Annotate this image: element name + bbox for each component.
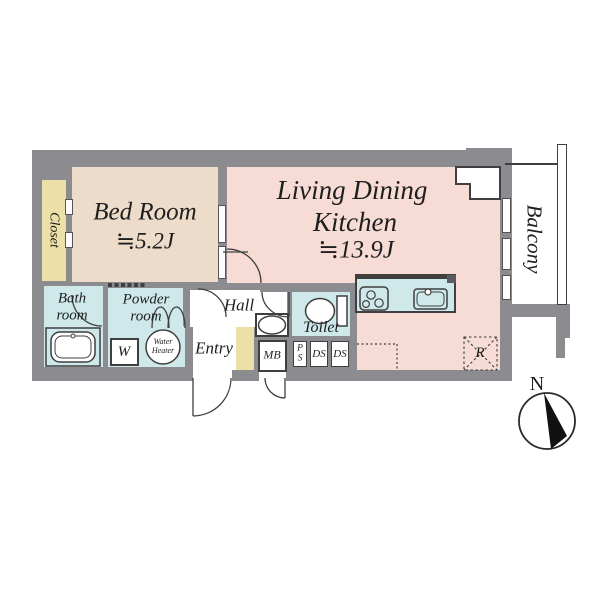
ldk-corner-notch: [456, 167, 500, 199]
pipe-space-label-line1: P: [297, 344, 303, 354]
toilet-label: Toilet: [303, 319, 339, 337]
powder-room-label-line1: Powder: [123, 292, 170, 309]
stove-burner-2: [363, 301, 370, 308]
meter-box-door-arc: [265, 378, 285, 398]
ldk-door-arc: [227, 249, 261, 283]
pipe-space-label: P S: [297, 344, 303, 365]
ldk-label-line2: Kitchen: [313, 208, 397, 238]
duct-space-label-1: DS: [312, 348, 325, 360]
bedroom-label: Bed Room: [93, 198, 196, 226]
pipe-space-label-line2: S: [297, 354, 303, 364]
entry-label: Entry: [195, 340, 233, 359]
hall-door-arc: [198, 289, 226, 317]
sink-faucet: [425, 289, 431, 295]
water-heater-label: Water Heater: [152, 338, 174, 356]
closet-label: Closet: [46, 212, 61, 248]
floor-plan: Bed Room ≒5.2J Living Dining Kitchen ≒13…: [0, 0, 600, 600]
bathroom-label-line1: Bath: [56, 291, 87, 308]
stove-burner-1: [367, 291, 375, 299]
hall-label: Hall: [224, 297, 254, 316]
ldk-size-label: ≒13.9J: [318, 236, 394, 264]
kitchen-dashed-outline: [357, 344, 397, 370]
meter-box-label: MB: [263, 348, 280, 361]
wash-basin: [259, 316, 286, 334]
refrigerator-space-label: R: [475, 345, 484, 362]
powder-bifold-door-arc-2: [168, 307, 185, 328]
ldk-label-line1: Living Dining: [277, 176, 428, 206]
compass-north-label: N: [530, 373, 544, 395]
balcony-label: Balcony: [522, 205, 545, 274]
plan-linework: [0, 0, 600, 600]
bedroom-size-label: ≒5.2J: [116, 228, 174, 253]
bathroom-label: Bath room: [56, 291, 87, 324]
washing-machine-label: W: [118, 344, 131, 361]
water-heater-label-line2: Heater: [152, 347, 174, 356]
partition-ticks: [108, 283, 145, 287]
powder-room-label: Powder room: [123, 292, 170, 325]
entry-door-arc: [193, 378, 231, 416]
bathtub-drain: [71, 334, 75, 338]
duct-space-label-2: DS: [333, 348, 346, 360]
toilet-door-arc: [262, 292, 289, 317]
bathroom-label-line2: room: [56, 307, 87, 324]
powder-room-label-line2: room: [123, 308, 170, 325]
stove-burner-3: [375, 299, 383, 307]
